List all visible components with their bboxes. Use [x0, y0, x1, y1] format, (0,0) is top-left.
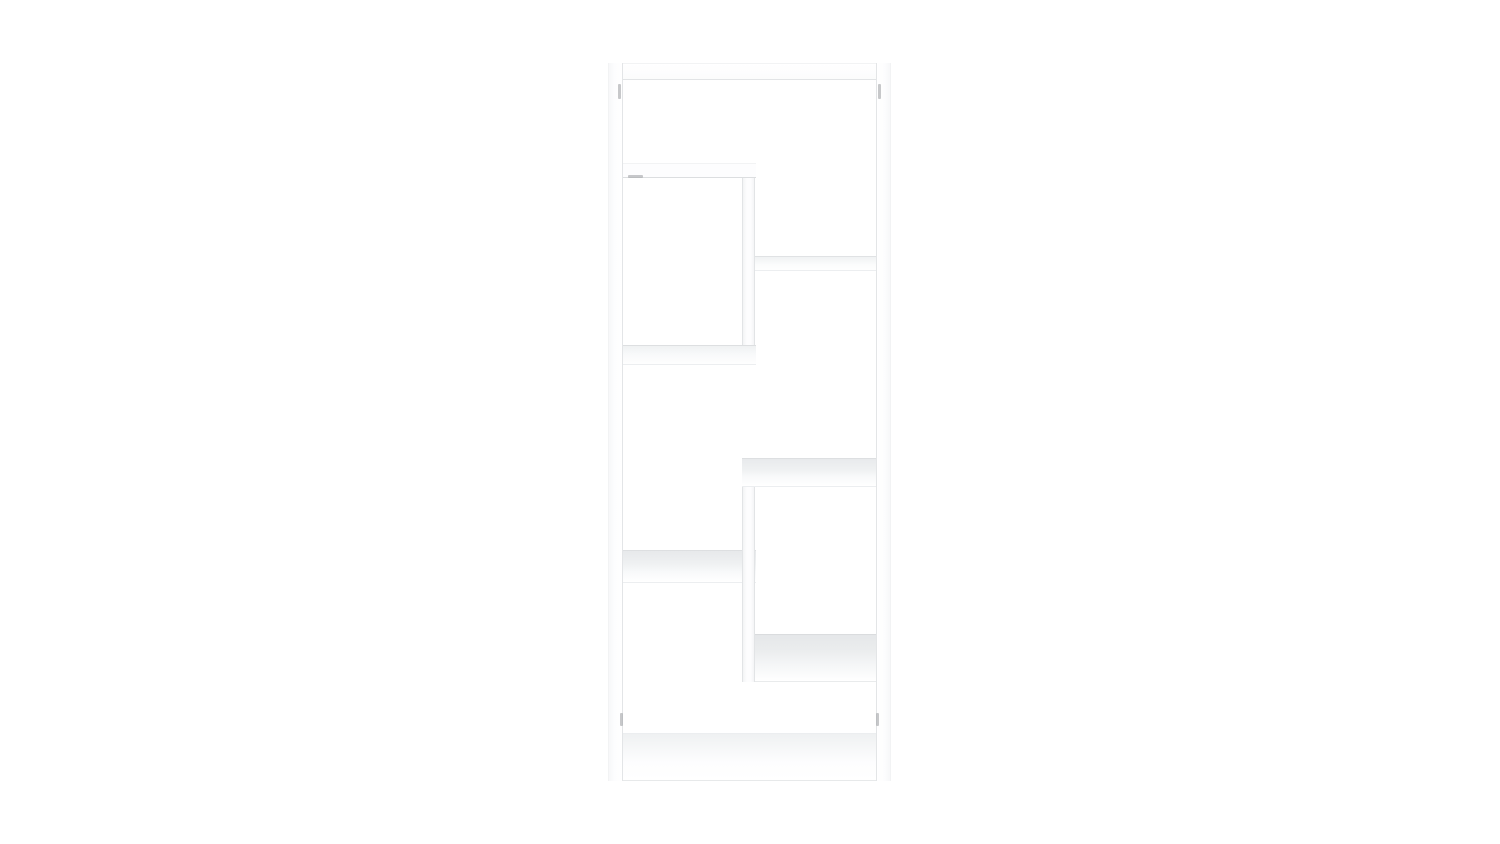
bookshelf-shelf-right-upper	[742, 256, 876, 271]
shelf-joint-shadow-left	[628, 175, 643, 178]
bookshelf-shelf-right-middle	[742, 458, 876, 487]
bookshelf-shelf-right-lower	[742, 634, 876, 682]
bookshelf-shelf-left-middle	[623, 345, 756, 365]
bookshelf-left-side-panel	[608, 63, 623, 781]
bookshelf-shelf-left-lower	[623, 550, 756, 583]
connector-pin-bottom-left	[620, 713, 623, 726]
bookshelf-divider-upper	[742, 166, 755, 362]
product-photo: White freestanding bookcase with eight s…	[0, 0, 1500, 844]
connector-pin-top-right	[878, 84, 881, 99]
connector-pin-top-left	[618, 84, 621, 99]
bookshelf-top-panel	[608, 63, 891, 80]
bookshelf-bottom-panel	[608, 733, 891, 781]
connector-pin-bottom-right	[876, 713, 879, 726]
bookshelf-right-side-panel	[876, 63, 891, 781]
bookshelf-divider-lower	[742, 468, 755, 682]
